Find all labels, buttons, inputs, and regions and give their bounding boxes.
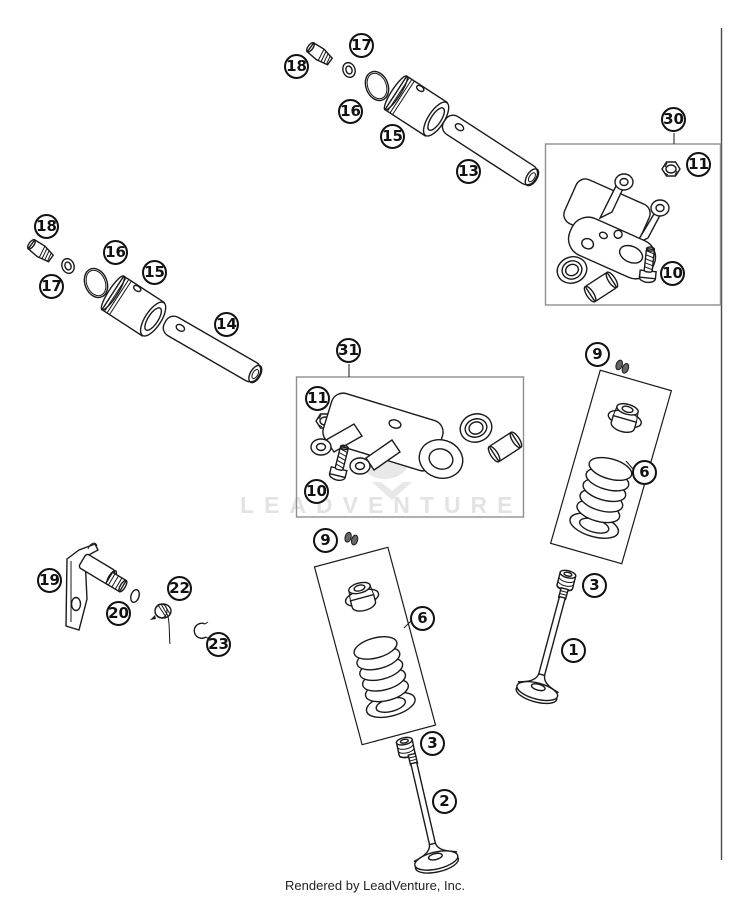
callout-18-left: 18: [34, 214, 59, 239]
o-ring-16-left: [80, 265, 112, 301]
callout-15-left: 15: [142, 260, 167, 285]
callout-15-top: 15: [380, 124, 405, 149]
callout-6-lower: 6: [410, 606, 435, 631]
callout-17-top: 17: [349, 33, 374, 58]
callout-20: 20: [106, 601, 131, 626]
callout-11-mid: 11: [305, 386, 330, 411]
washer-17-left: [60, 257, 76, 275]
circlip-23: [194, 622, 209, 639]
valve-spring-kit-lower: [314, 532, 435, 745]
callout-3-right: 3: [582, 573, 607, 598]
bearing-roller-31: [456, 410, 495, 447]
valve-keepers-9-right: [614, 359, 630, 374]
valve-keepers-9-lower: [344, 532, 359, 546]
parts-diagram-canvas: LEADVENTURE: [0, 0, 750, 900]
callout-1: 1: [561, 638, 586, 663]
callout-16-left: 16: [103, 240, 128, 265]
pushrod-14: [160, 313, 265, 386]
callout-2: 2: [432, 789, 457, 814]
callout-17-left: 17: [39, 274, 64, 299]
o-ring-20: [129, 589, 141, 604]
callout-14: 14: [214, 312, 239, 337]
pushrod-13: [439, 112, 542, 189]
callout-13: 13: [456, 159, 481, 184]
spacer-sleeve-30: [582, 270, 619, 303]
spacer-sleeve-31: [486, 430, 523, 463]
callout-10-top: 10: [660, 261, 685, 286]
exploded-parts-drawing: [0, 0, 750, 900]
callout-6-right: 6: [632, 460, 657, 485]
rendered-by-caption: Rendered by LeadVenture, Inc.: [0, 878, 750, 893]
exhaust-valve-2: [390, 749, 460, 876]
washer-17-top: [341, 61, 357, 79]
rocker-arm-kit-box-31: [297, 364, 524, 517]
callout-31: 31: [336, 338, 361, 363]
adjusting-screw-18-left: [26, 238, 55, 264]
callout-18-top: 18: [284, 54, 309, 79]
callout-3-lower: 3: [420, 731, 445, 756]
adjusting-screw-18-top: [305, 41, 334, 67]
callout-23: 23: [206, 632, 231, 657]
callout-9-lower: 9: [313, 528, 338, 553]
callout-19: 19: [37, 568, 62, 593]
callout-16-top: 16: [338, 99, 363, 124]
callout-30: 30: [661, 107, 686, 132]
callout-10-mid: 10: [304, 479, 329, 504]
callout-9-right: 9: [585, 342, 610, 367]
nut-11-top: [662, 162, 680, 176]
valve-spring-kit-right: [551, 359, 672, 563]
torsion-spring-22: [150, 604, 171, 644]
callout-22: 22: [167, 576, 192, 601]
callout-11-top: 11: [686, 152, 711, 177]
